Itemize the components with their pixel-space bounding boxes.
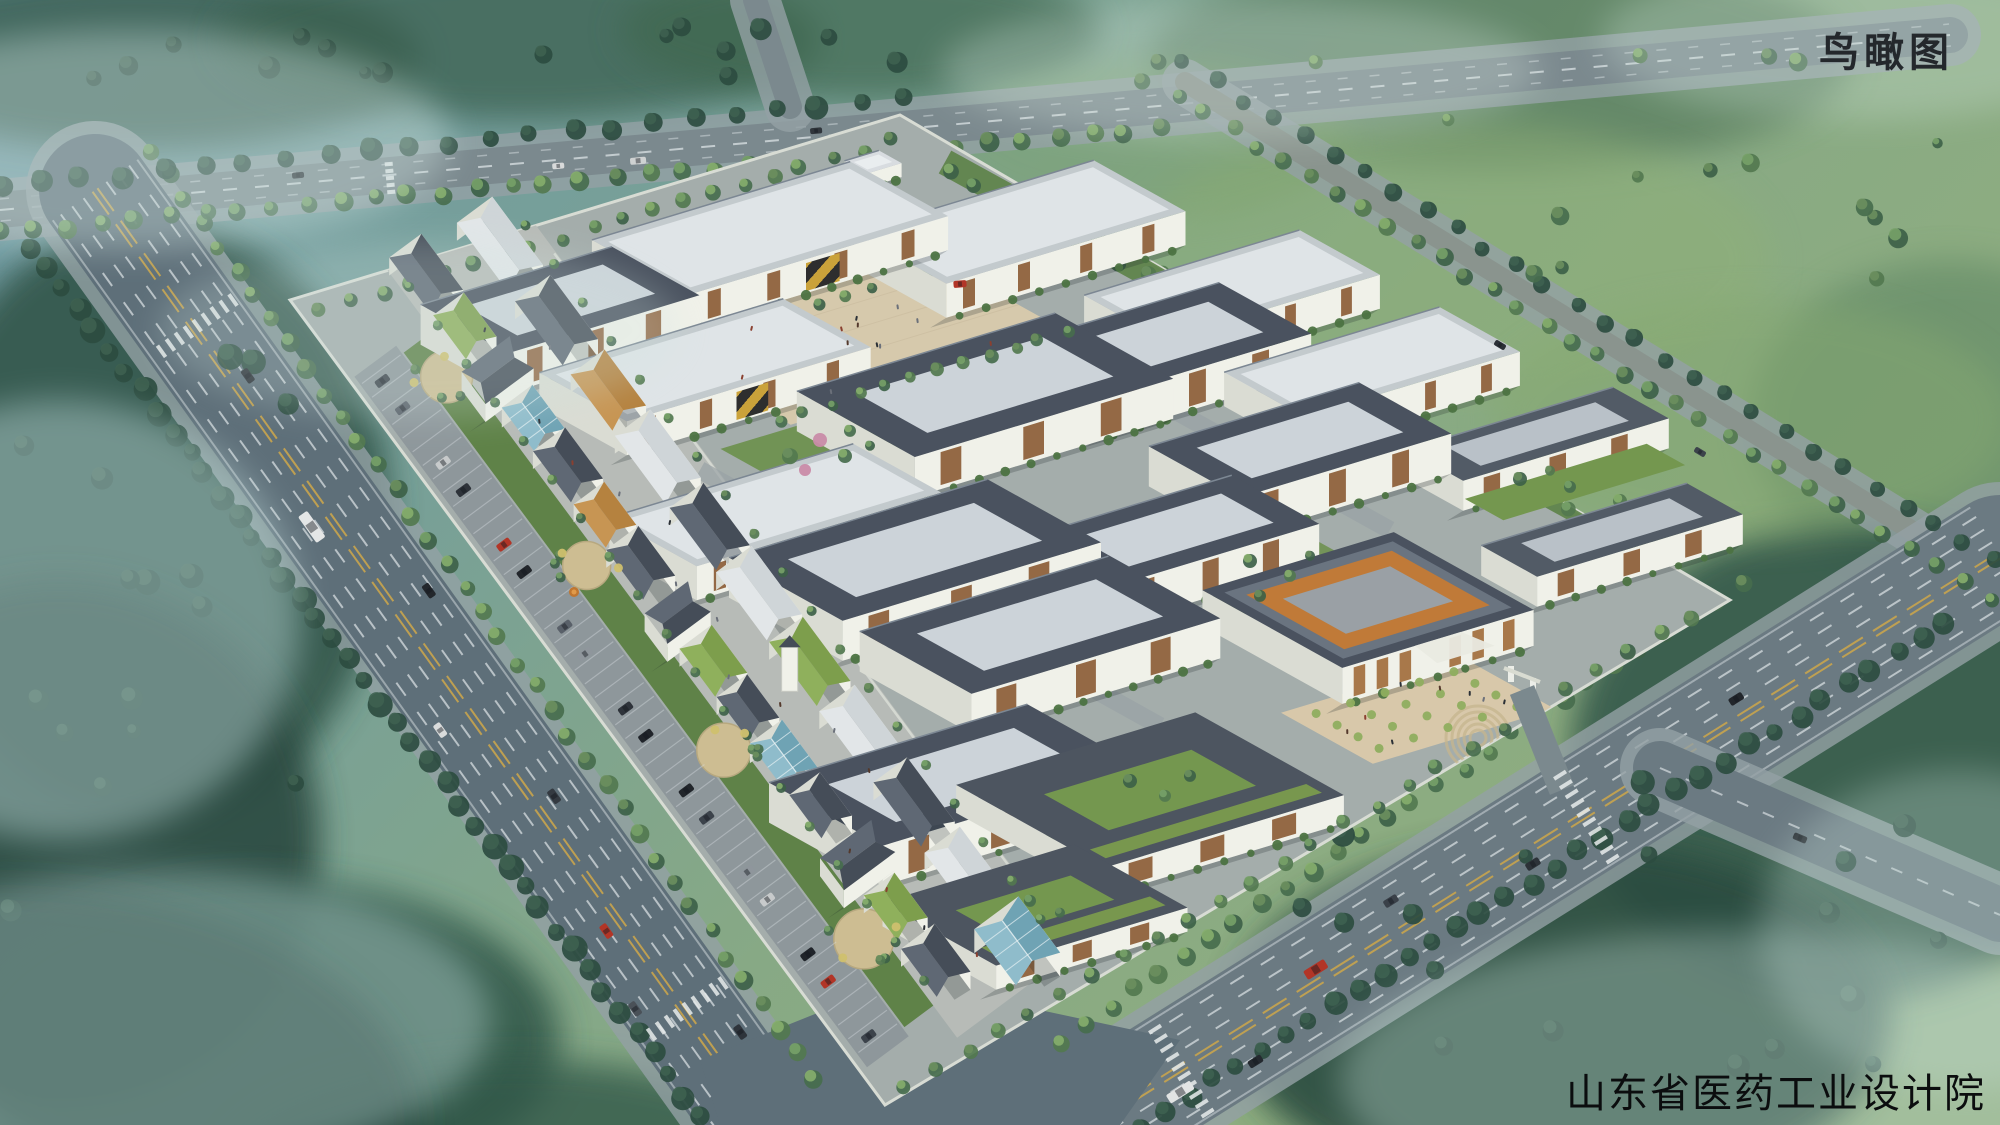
shrub <box>982 303 991 312</box>
shrub <box>1079 444 1086 451</box>
tree <box>1840 672 1852 684</box>
tree <box>1514 472 1523 481</box>
allee-tree <box>1422 711 1431 720</box>
tree <box>1225 914 1237 926</box>
tree <box>1495 887 1507 899</box>
tree <box>511 658 520 667</box>
tree <box>1457 268 1468 279</box>
tree <box>1401 948 1412 959</box>
tree <box>893 721 899 727</box>
tree <box>1871 482 1880 491</box>
tree <box>1085 968 1095 978</box>
tree <box>1641 846 1651 856</box>
window-band <box>700 398 712 429</box>
shrub <box>891 176 901 186</box>
mist <box>160 240 680 420</box>
tree <box>1870 271 1879 280</box>
tree <box>1986 593 1995 602</box>
tree <box>887 52 900 65</box>
tree <box>1904 541 1914 551</box>
tree <box>753 751 759 757</box>
tree <box>1014 133 1025 144</box>
tree <box>1022 1008 1030 1016</box>
tree <box>600 775 612 787</box>
tree <box>500 854 516 870</box>
window-band <box>1142 224 1154 255</box>
shrub <box>1215 399 1223 407</box>
tree <box>1659 353 1668 362</box>
shrub <box>906 260 913 267</box>
tree <box>839 449 848 458</box>
tree <box>1447 916 1460 929</box>
tree <box>1156 1102 1169 1115</box>
tree <box>876 955 882 961</box>
tree <box>688 108 700 120</box>
view-title-label: 鸟瞰图 <box>1819 20 1954 78</box>
tree <box>929 1062 938 1071</box>
vehicle <box>630 157 647 165</box>
tree <box>294 28 305 39</box>
tree <box>1354 827 1364 837</box>
tree <box>957 356 965 364</box>
allee-tree <box>1478 713 1487 722</box>
aerial-rendering: 鸟瞰图 山东省医药工业设计院 <box>0 0 2000 1125</box>
tree <box>1325 991 1339 1005</box>
tree <box>821 29 831 39</box>
person <box>571 460 573 465</box>
tree <box>768 169 777 178</box>
shrub <box>1027 459 1036 468</box>
tree <box>1620 810 1634 824</box>
tree <box>1124 774 1133 783</box>
window-band <box>1392 449 1409 487</box>
person <box>1364 715 1366 720</box>
window-band <box>767 270 780 301</box>
tree <box>1718 385 1727 394</box>
tree <box>579 752 590 763</box>
tree <box>1064 326 1071 333</box>
tree <box>435 187 446 198</box>
yellow-tree <box>710 725 719 734</box>
allee-tree <box>1346 699 1355 708</box>
mist <box>940 0 1540 140</box>
tree <box>1106 1001 1116 1011</box>
tree <box>855 94 865 104</box>
tree <box>1545 466 1551 472</box>
window-band <box>1080 243 1092 274</box>
shrub <box>1701 555 1708 562</box>
allee-tree <box>1333 721 1342 730</box>
vehicle <box>810 127 822 134</box>
tree <box>856 387 863 394</box>
shrub <box>1327 825 1335 833</box>
tree <box>401 732 413 744</box>
tree <box>1305 551 1311 557</box>
tree <box>1255 1042 1265 1052</box>
tree <box>1031 333 1039 341</box>
allee-tree <box>1354 732 1363 741</box>
tree <box>783 448 793 458</box>
allee-tree <box>1381 688 1390 697</box>
tree <box>1379 218 1390 229</box>
tree <box>1452 220 1461 229</box>
tree <box>1203 1069 1214 1080</box>
window-band <box>1023 421 1044 460</box>
tree <box>1929 557 1939 567</box>
shrub <box>853 274 863 284</box>
window-band <box>941 446 962 485</box>
tree <box>70 298 84 312</box>
window-band <box>1151 637 1171 676</box>
tree <box>1284 570 1291 577</box>
yellow-tree <box>740 729 749 738</box>
tree <box>730 107 740 117</box>
tree <box>483 131 493 141</box>
shrub <box>1675 562 1682 569</box>
tree <box>1669 395 1678 404</box>
shrub <box>1545 600 1555 610</box>
blossom-tree <box>813 433 827 447</box>
tree <box>778 567 784 573</box>
tree <box>1835 458 1845 468</box>
allee-tree <box>1415 678 1424 687</box>
tree <box>662 629 668 635</box>
tree <box>1666 778 1680 792</box>
tree <box>1519 849 1528 858</box>
shrub <box>1726 547 1733 554</box>
tree <box>148 402 163 417</box>
window-band <box>1481 363 1492 393</box>
tree <box>1178 947 1190 959</box>
shrub <box>1649 570 1656 577</box>
tree <box>550 559 556 565</box>
shrub <box>916 871 926 881</box>
tree <box>1279 856 1288 865</box>
tree <box>944 164 954 174</box>
tree <box>605 552 611 558</box>
shrub <box>1060 967 1068 975</box>
tree <box>720 67 731 78</box>
tree <box>735 971 747 983</box>
tree <box>420 750 434 764</box>
allee-tree <box>1443 723 1452 732</box>
tree <box>1632 770 1647 785</box>
tree <box>1184 770 1191 777</box>
tree <box>1300 1013 1310 1023</box>
tree <box>1335 913 1347 925</box>
tree <box>1358 164 1367 173</box>
tree <box>1293 898 1305 910</box>
tree <box>707 923 716 932</box>
tree <box>1467 741 1476 750</box>
shrub <box>745 416 753 424</box>
tree <box>1305 863 1317 875</box>
tree <box>980 132 992 144</box>
allee-tree <box>1436 689 1445 698</box>
tree <box>985 349 994 358</box>
allee-tree <box>1402 700 1411 709</box>
tree <box>770 100 780 110</box>
tree <box>1806 444 1817 455</box>
tree <box>1772 460 1781 469</box>
tree <box>1509 256 1519 266</box>
shrub <box>1103 435 1113 445</box>
tree <box>535 45 546 56</box>
tree <box>979 837 985 843</box>
shrub <box>1087 958 1096 967</box>
tree <box>1526 265 1537 276</box>
shrub <box>1272 840 1283 851</box>
tree <box>1933 138 1939 144</box>
vehicle <box>953 280 967 288</box>
shrub <box>1156 421 1164 429</box>
tree <box>884 132 893 141</box>
shrub <box>1000 467 1010 477</box>
shrub <box>1129 682 1138 691</box>
tree <box>1141 266 1151 276</box>
tree <box>754 744 760 750</box>
tree <box>371 456 381 466</box>
tree <box>1054 988 1062 996</box>
shrub <box>1115 263 1123 271</box>
tree <box>1556 261 1564 269</box>
tree <box>789 1043 800 1054</box>
person <box>976 952 978 957</box>
tree <box>449 795 462 808</box>
tree <box>1488 282 1497 291</box>
tree <box>673 17 685 29</box>
tree <box>1767 724 1777 734</box>
window-band <box>902 229 915 260</box>
shrub <box>1154 675 1163 684</box>
shrub <box>1362 310 1371 319</box>
tree <box>1620 644 1630 654</box>
shrub <box>1434 673 1443 682</box>
tree <box>645 113 657 125</box>
shrub <box>1035 287 1044 296</box>
tree <box>101 343 112 354</box>
tree <box>563 935 579 951</box>
tree <box>1254 894 1266 906</box>
tree <box>1590 663 1598 671</box>
tree <box>1564 334 1575 345</box>
tree <box>829 152 837 160</box>
shrub <box>1434 476 1442 484</box>
tree <box>797 406 804 413</box>
tree <box>777 783 783 789</box>
tree <box>1914 627 1927 640</box>
tree <box>1739 732 1753 746</box>
tree <box>1424 933 1434 943</box>
tree <box>805 1070 817 1082</box>
tree <box>964 1044 973 1053</box>
shrub <box>930 251 940 261</box>
tree <box>864 683 870 689</box>
shrub <box>1489 656 1497 664</box>
tree <box>676 192 686 202</box>
person <box>1346 729 1348 734</box>
shrub <box>1130 428 1138 436</box>
tree <box>1810 689 1823 702</box>
tree <box>756 996 765 1005</box>
tree <box>905 372 912 379</box>
shrub <box>880 268 888 276</box>
tree <box>1305 839 1313 847</box>
window-band <box>1189 369 1206 407</box>
tree <box>718 951 728 961</box>
window-band <box>1018 261 1030 292</box>
shrub <box>995 849 1002 856</box>
allee-tree <box>1457 701 1466 710</box>
tree <box>489 627 500 638</box>
tree <box>567 119 580 132</box>
tree <box>634 590 640 596</box>
tree <box>1126 978 1137 989</box>
shrub <box>1079 698 1087 706</box>
shrub <box>801 290 811 300</box>
tree <box>390 480 401 491</box>
tree <box>1568 839 1581 852</box>
tree <box>644 164 655 175</box>
tree <box>1250 141 1259 150</box>
shrub <box>771 407 781 417</box>
tree <box>507 178 516 187</box>
shrub <box>1168 874 1175 881</box>
tree <box>1013 343 1020 350</box>
tree <box>681 897 692 908</box>
tree <box>859 145 868 154</box>
tree <box>950 799 956 805</box>
tree <box>1007 876 1013 882</box>
tree <box>1475 242 1484 251</box>
sculpture <box>572 590 577 595</box>
shrub <box>1515 647 1525 657</box>
tree <box>340 648 353 661</box>
tree <box>1421 201 1432 212</box>
shrub <box>1502 388 1510 396</box>
allee-tree <box>1409 733 1418 742</box>
tree <box>1690 766 1705 781</box>
tree <box>672 1087 686 1101</box>
tree <box>891 937 897 943</box>
tree <box>305 608 318 621</box>
shrub <box>1006 983 1014 991</box>
tree <box>824 926 830 932</box>
tree <box>897 1080 906 1089</box>
shrub <box>1053 452 1061 460</box>
tree <box>661 1066 671 1076</box>
tree <box>1829 496 1839 506</box>
tree <box>719 706 725 712</box>
shrub <box>1475 395 1485 405</box>
yellow-tree <box>558 549 567 558</box>
tree <box>834 860 840 866</box>
tree <box>1036 914 1042 920</box>
tree <box>1385 183 1396 194</box>
tree <box>1717 753 1730 766</box>
shrub <box>1382 492 1389 499</box>
shrub <box>1203 660 1212 669</box>
tree <box>1054 1035 1064 1045</box>
shrub <box>956 312 964 320</box>
tree <box>840 290 847 297</box>
person <box>857 322 859 327</box>
tree <box>466 817 478 829</box>
tree <box>776 416 783 423</box>
shrub <box>1178 667 1188 677</box>
tree <box>1254 590 1261 597</box>
tree <box>81 317 97 333</box>
window-band <box>1425 380 1436 410</box>
credit-label: 山东省医药工业设计院 <box>1566 1061 1986 1119</box>
tree <box>862 899 868 905</box>
tree <box>649 853 659 863</box>
tree <box>603 120 615 132</box>
tree <box>288 775 298 785</box>
tree <box>1305 169 1314 178</box>
tree <box>674 162 685 173</box>
shrub <box>1329 507 1337 515</box>
tree <box>369 692 385 708</box>
shrub <box>1193 865 1202 874</box>
tree <box>1958 573 1968 583</box>
tree <box>828 401 834 407</box>
tree <box>610 168 621 179</box>
tree <box>576 513 582 519</box>
yellow-tree <box>838 953 847 962</box>
window-band <box>708 288 721 319</box>
tree <box>1901 500 1912 511</box>
tree <box>1202 929 1214 941</box>
tower-shaft <box>782 647 798 691</box>
person <box>1469 691 1471 696</box>
tree <box>1281 881 1290 890</box>
tree <box>115 364 127 376</box>
shrub <box>1461 664 1469 672</box>
tree <box>1467 901 1481 915</box>
tree <box>1802 479 1813 490</box>
window-band <box>1076 659 1096 698</box>
window-band <box>1341 286 1352 316</box>
tree <box>1742 154 1753 165</box>
tree <box>1704 163 1713 172</box>
scene-canvas <box>0 0 2000 1125</box>
shrub <box>705 593 715 603</box>
tree <box>1181 913 1191 923</box>
tree <box>646 1041 659 1054</box>
tree <box>646 202 655 211</box>
yellow-tree <box>892 922 901 931</box>
allee-tree <box>1491 691 1500 700</box>
shrub <box>1597 585 1606 594</box>
tree <box>1987 551 1997 561</box>
shrub <box>1188 407 1198 417</box>
tree <box>691 1106 703 1118</box>
tree <box>920 976 926 982</box>
tree <box>1053 128 1064 139</box>
tree <box>610 1002 624 1016</box>
tree <box>1597 315 1608 326</box>
tree <box>476 603 486 613</box>
tree <box>1933 613 1947 627</box>
tree <box>356 672 366 682</box>
shrub <box>1168 247 1177 256</box>
tree <box>1793 706 1807 720</box>
tree <box>570 171 582 183</box>
tree <box>1404 779 1412 787</box>
tree <box>1564 481 1571 488</box>
shrub <box>1105 691 1112 698</box>
